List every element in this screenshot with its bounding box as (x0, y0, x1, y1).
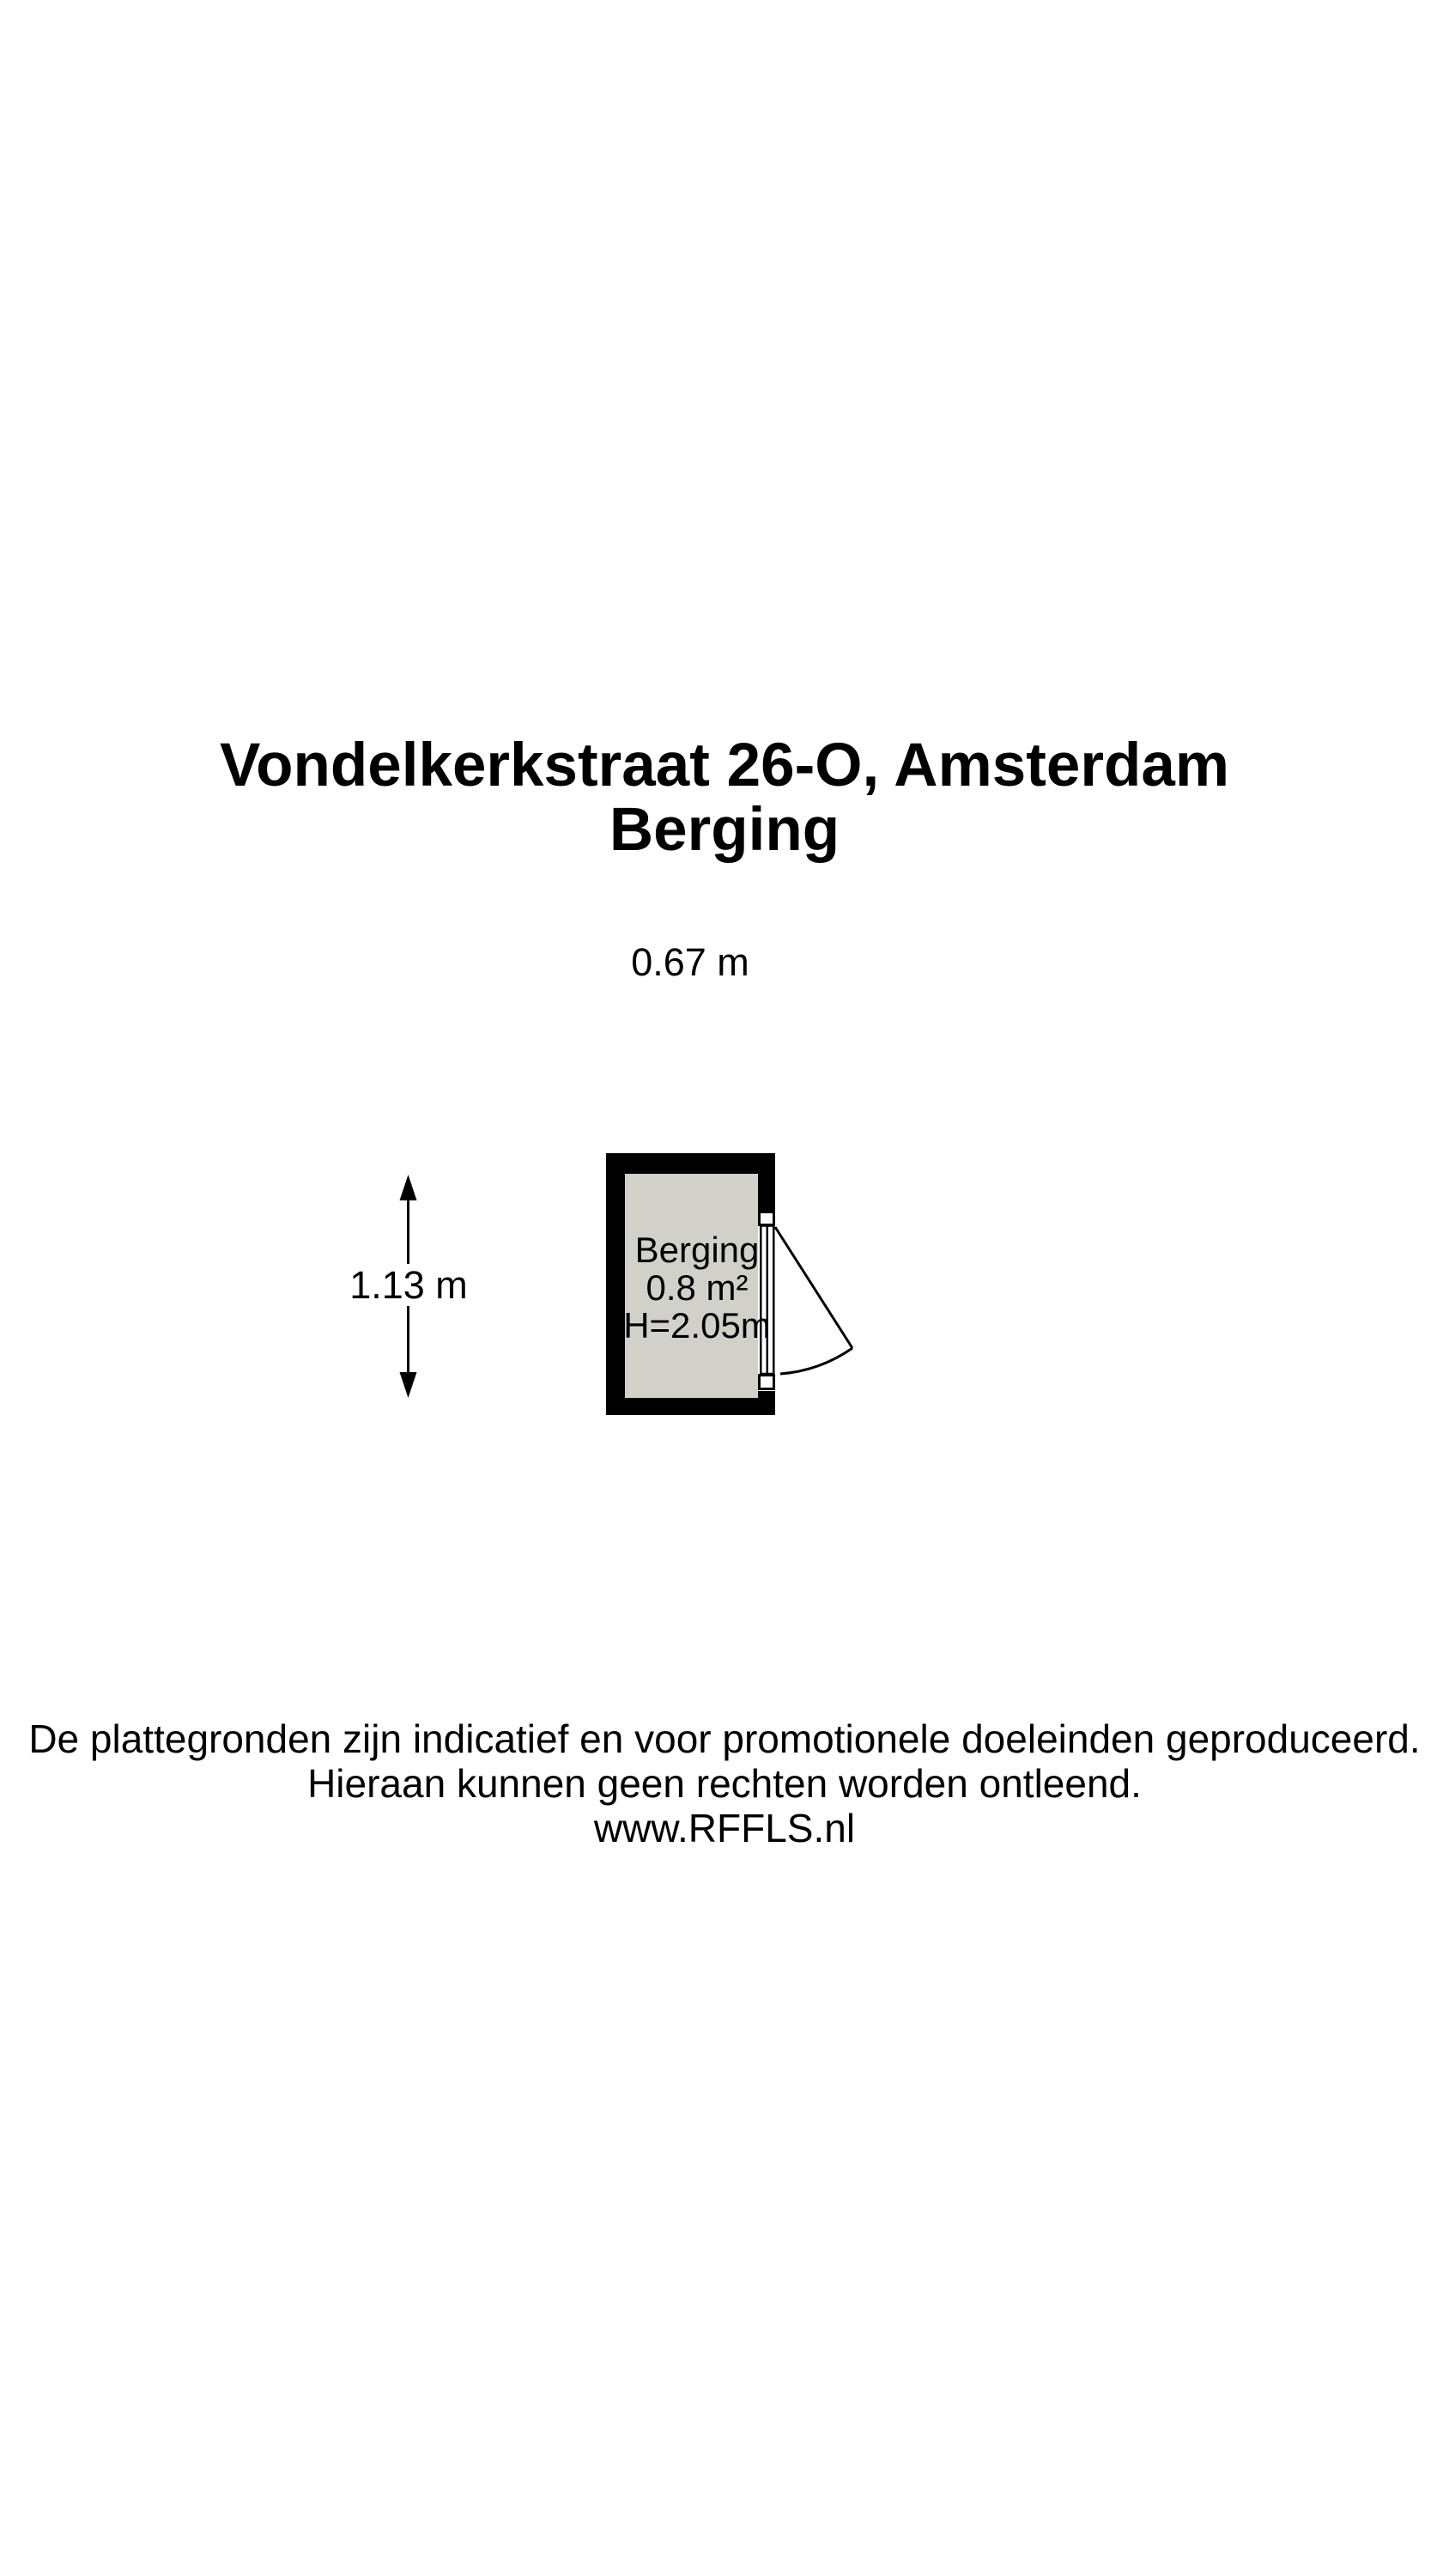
page-subtitle: Berging (0, 798, 1449, 862)
room-labels: Berging 0.8 m² H=2.05m (623, 1231, 771, 1345)
page-title: Vondelkerkstraat 26-O, Amsterdam (0, 733, 1449, 798)
footer-block: De plattegronden zijn indicatief en voor… (0, 1716, 1449, 1850)
room-area-label: 0.8 m² (623, 1269, 771, 1307)
width-dimension-label: 0.67 m (631, 943, 749, 981)
door-frame-bottom (760, 1376, 774, 1389)
door-frame-top (760, 1212, 774, 1225)
disclaimer-line-2: Hieraan kunnen geen rechten worden ontle… (0, 1761, 1449, 1806)
room-height-label: H=2.05m (623, 1307, 771, 1345)
arrow-down-icon (400, 1372, 417, 1398)
disclaimer-line-1: De plattegronden zijn indicatief en voor… (0, 1716, 1449, 1761)
floorplan-page: Vondelkerkstraat 26-O, Amsterdam Berging… (0, 0, 1449, 2576)
website-label: www.RFFLS.nl (0, 1806, 1449, 1850)
height-dimension-label: 1.13 m (343, 1264, 475, 1306)
door-swing-arc (780, 1348, 852, 1374)
door-swing-line (775, 1227, 852, 1348)
title-block: Vondelkerkstraat 26-O, Amsterdam Berging (0, 733, 1449, 862)
arrow-up-icon (400, 1175, 417, 1200)
room-name-label: Berging (623, 1231, 771, 1269)
